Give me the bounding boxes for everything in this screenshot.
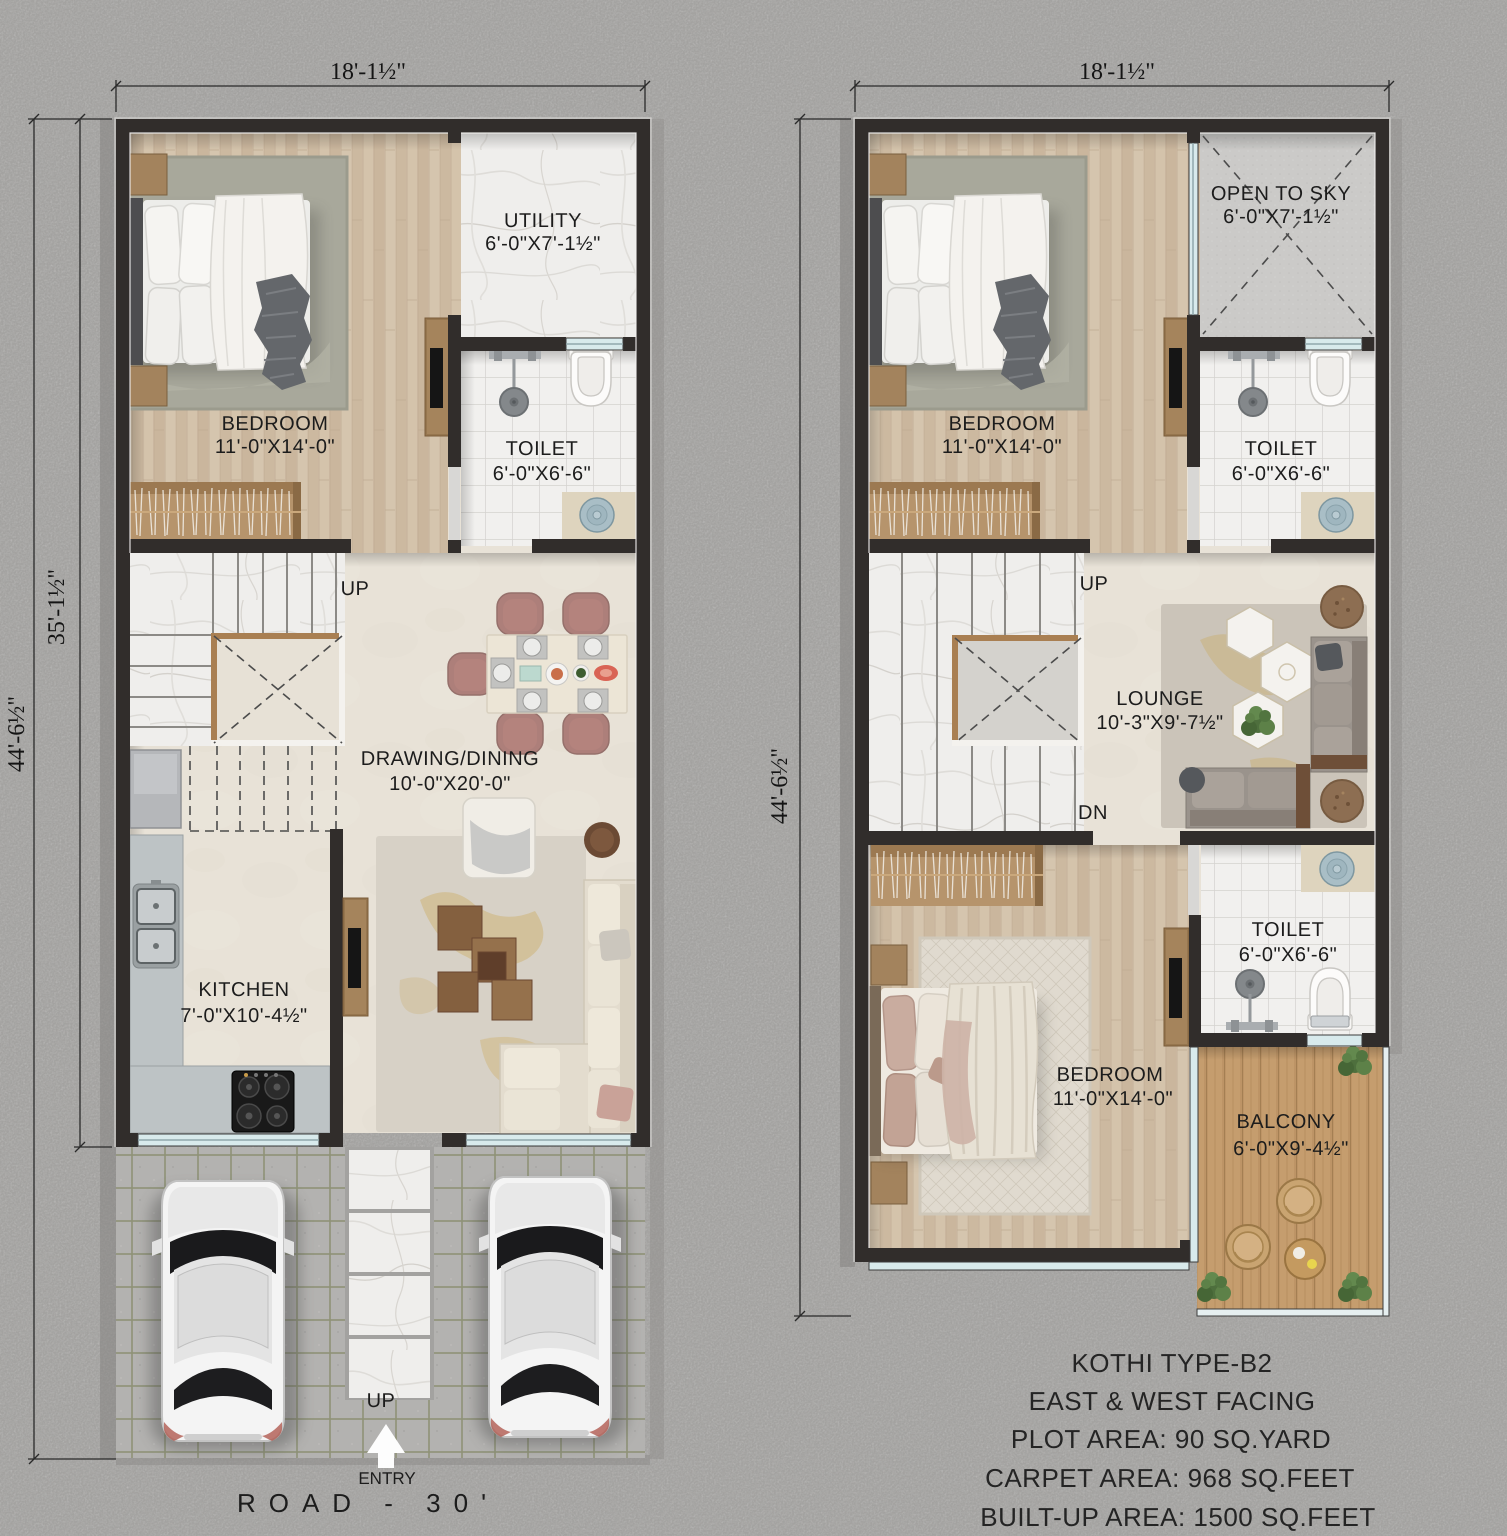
svg-text:UP: UP xyxy=(367,1390,396,1412)
svg-text:TOILET: TOILET xyxy=(506,438,579,460)
svg-text:OPEN TO SKY: OPEN TO SKY xyxy=(1211,183,1351,205)
svg-text:PLOT AREA: 90 SQ.YARD: PLOT AREA: 90 SQ.YARD xyxy=(1011,1424,1331,1454)
svg-text:TOILET: TOILET xyxy=(1245,438,1318,460)
svg-text:KITCHEN: KITCHEN xyxy=(198,979,289,1001)
svg-text:6'-0"X6'-6": 6'-0"X6'-6" xyxy=(1239,944,1338,966)
svg-text:18'-1½": 18'-1½" xyxy=(1079,59,1155,85)
svg-text:LOUNGE: LOUNGE xyxy=(1116,688,1203,710)
svg-text:UP: UP xyxy=(341,578,370,600)
svg-text:TOILET: TOILET xyxy=(1252,919,1325,941)
svg-text:11'-0"X14'-0": 11'-0"X14'-0" xyxy=(942,436,1062,458)
svg-text:6'-0"X6'-6": 6'-0"X6'-6" xyxy=(1232,463,1331,485)
svg-text:CARPET AREA: 968 SQ.FEET: CARPET AREA: 968 SQ.FEET xyxy=(985,1463,1355,1493)
svg-text:11'-0"X14'-0": 11'-0"X14'-0" xyxy=(215,436,335,458)
svg-text:10'-3"X9'-7½": 10'-3"X9'-7½" xyxy=(1096,712,1223,734)
svg-text:6'-0"X6'-6": 6'-0"X6'-6" xyxy=(493,463,592,485)
svg-text:UP: UP xyxy=(1080,573,1109,595)
svg-text:BEDROOM: BEDROOM xyxy=(949,413,1056,435)
svg-text:DRAWING/DINING: DRAWING/DINING xyxy=(361,748,539,770)
svg-text:KOTHI TYPE-B2: KOTHI TYPE-B2 xyxy=(1071,1348,1272,1378)
svg-text:BALCONY: BALCONY xyxy=(1236,1111,1335,1133)
svg-text:BEDROOM: BEDROOM xyxy=(1057,1064,1164,1086)
svg-text:7'-0"X10'-4½": 7'-0"X10'-4½" xyxy=(180,1005,307,1027)
svg-text:6'-0"X7'-1½": 6'-0"X7'-1½" xyxy=(1223,206,1339,228)
svg-text:DN: DN xyxy=(1078,802,1108,824)
svg-text:44'-6½": 44'-6½" xyxy=(767,748,793,824)
svg-text:11'-0"X14'-0": 11'-0"X14'-0" xyxy=(1053,1088,1173,1110)
svg-text:BUILT-UP AREA: 1500 SQ.FEET: BUILT-UP AREA: 1500 SQ.FEET xyxy=(980,1502,1375,1532)
svg-text:10'-0"X20'-0": 10'-0"X20'-0" xyxy=(389,773,511,795)
svg-text:6'-0"X9'-4½": 6'-0"X9'-4½" xyxy=(1233,1138,1349,1160)
svg-text:UTILITY: UTILITY xyxy=(504,210,582,232)
svg-text:EAST & WEST FACING: EAST & WEST FACING xyxy=(1029,1386,1316,1416)
svg-text:44'-6½": 44'-6½" xyxy=(4,696,30,772)
svg-text:18'-1½": 18'-1½" xyxy=(330,59,406,85)
svg-text:ENTRY: ENTRY xyxy=(358,1469,415,1488)
svg-text:ROAD - 30': ROAD - 30' xyxy=(237,1488,499,1518)
svg-text:6'-0"X7'-1½": 6'-0"X7'-1½" xyxy=(485,233,601,255)
svg-text:BEDROOM: BEDROOM xyxy=(222,413,329,435)
svg-text:35'-1½": 35'-1½" xyxy=(44,569,70,645)
